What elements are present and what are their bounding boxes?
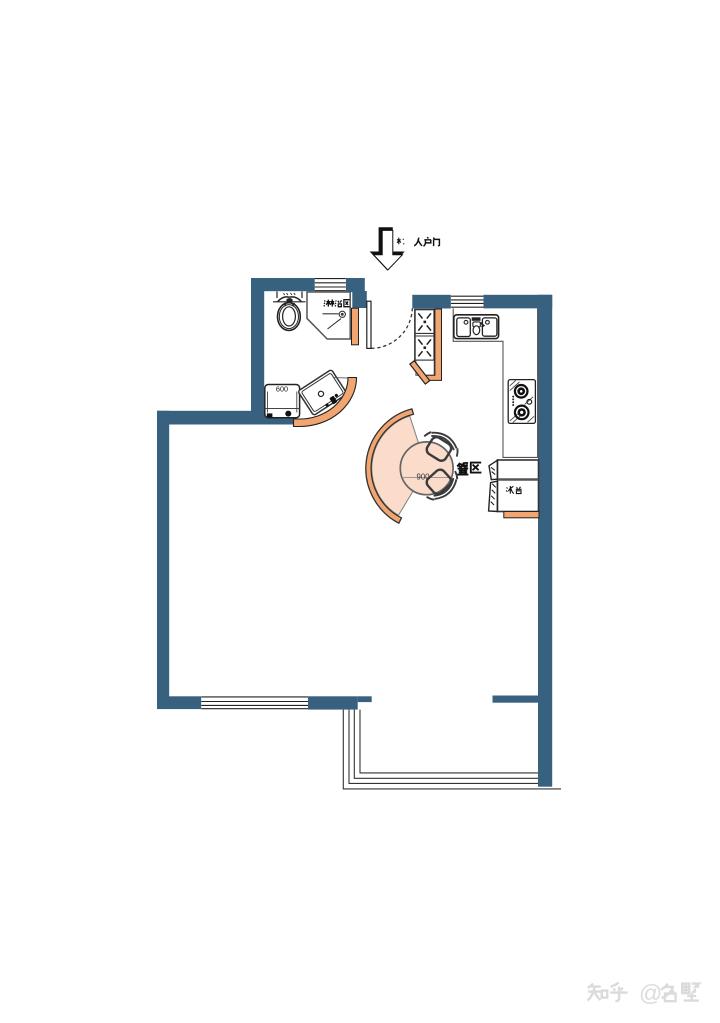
svg-text:600: 600 xyxy=(276,385,288,394)
svg-text:@: @ xyxy=(639,980,662,1006)
